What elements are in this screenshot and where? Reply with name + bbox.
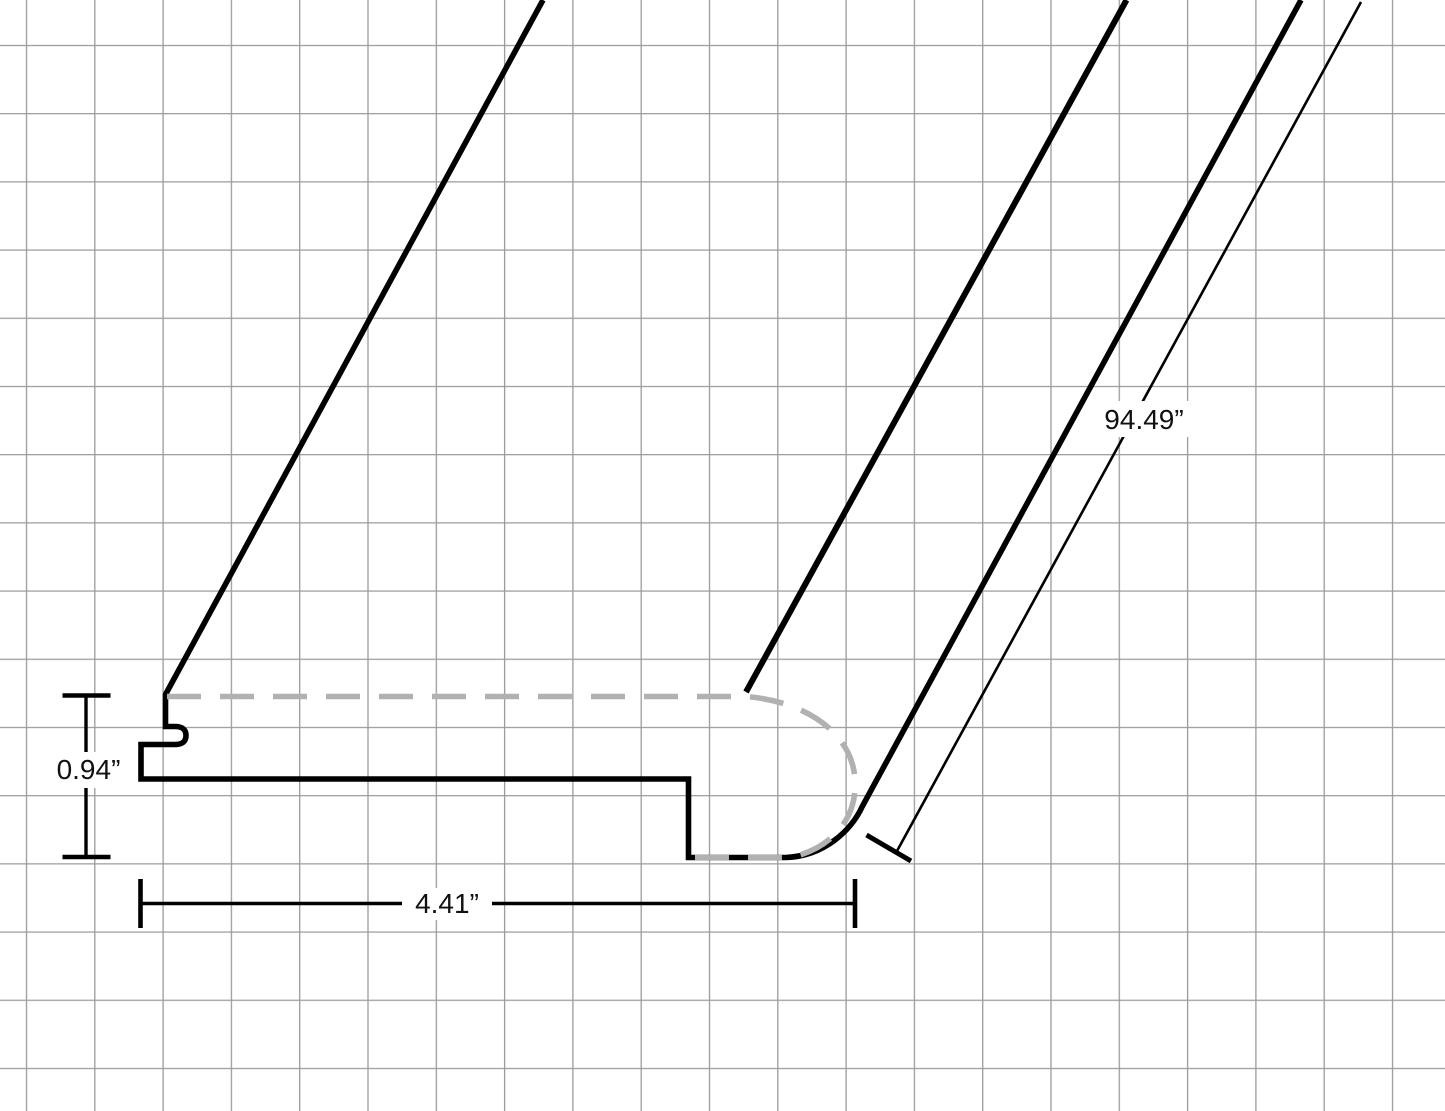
width-label: 4.41”	[415, 888, 479, 919]
technical-drawing-page: 0.94” 4.41” 94.49”	[0, 0, 1445, 1111]
grid-background	[0, 0, 1445, 1111]
length-label: 94.49”	[1104, 404, 1183, 435]
technical-drawing-canvas: 0.94” 4.41” 94.49”	[0, 0, 1445, 1111]
thickness-label: 0.94”	[57, 754, 121, 785]
